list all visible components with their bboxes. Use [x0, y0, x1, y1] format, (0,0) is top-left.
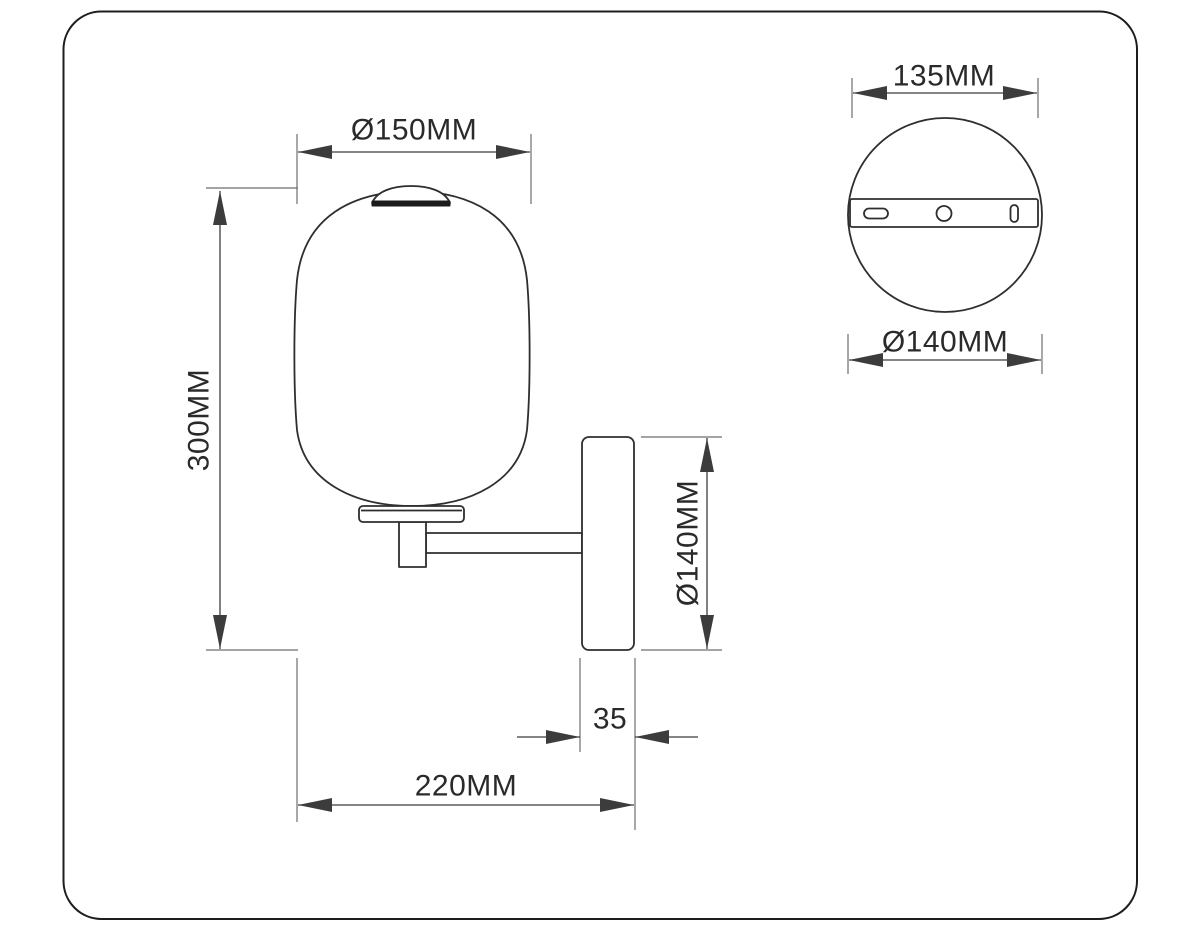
shade-cap-dome [372, 186, 450, 203]
arrow-shade-dia-left [298, 145, 332, 159]
shade-outline [294, 191, 529, 506]
arrow-plate-depth-right [635, 730, 669, 744]
drawing-canvas: Ø150MM 300MM Ø140MM 35 220MM 135MM Ø140M… [0, 0, 1200, 933]
wall-plate [582, 437, 634, 650]
dim-label-total-projection: 220MM [415, 770, 518, 803]
arrow-projection-right [600, 798, 634, 812]
shade-collar [359, 506, 464, 522]
top-view [848, 118, 1042, 312]
dim-label-bracket-length: 135MM [893, 60, 996, 93]
arrow-shade-dia-right [496, 145, 530, 159]
arrow-height-top [213, 191, 227, 225]
dimension-drawing-page: Ø150MM 300MM Ø140MM 35 220MM 135MM Ø140M… [0, 0, 1200, 933]
front-view [294, 186, 634, 650]
mounting-arm [426, 533, 582, 553]
lamp-stem [399, 522, 426, 567]
arrow-backplate-dia-left [849, 353, 883, 367]
arrow-plate-height-bottom [700, 615, 714, 649]
arrow-projection-left [298, 798, 332, 812]
dim-label-shade-diameter: Ø150MM [351, 114, 477, 147]
arrow-height-bottom [213, 615, 227, 649]
dim-label-backplate-height: Ø140MM [672, 480, 705, 606]
arrow-backplate-dia-right [1007, 353, 1041, 367]
dim-label-backplate-diameter: Ø140MM [882, 326, 1008, 359]
dim-label-backplate-depth: 35 [593, 703, 627, 736]
arrow-bracket-left [853, 86, 887, 100]
dim-label-total-height: 300MM [183, 369, 216, 472]
shade-cap-band [372, 201, 451, 207]
arrow-bracket-right [1003, 86, 1037, 100]
arrow-plate-height-top [700, 438, 714, 472]
arrow-plate-depth-left [546, 730, 580, 744]
